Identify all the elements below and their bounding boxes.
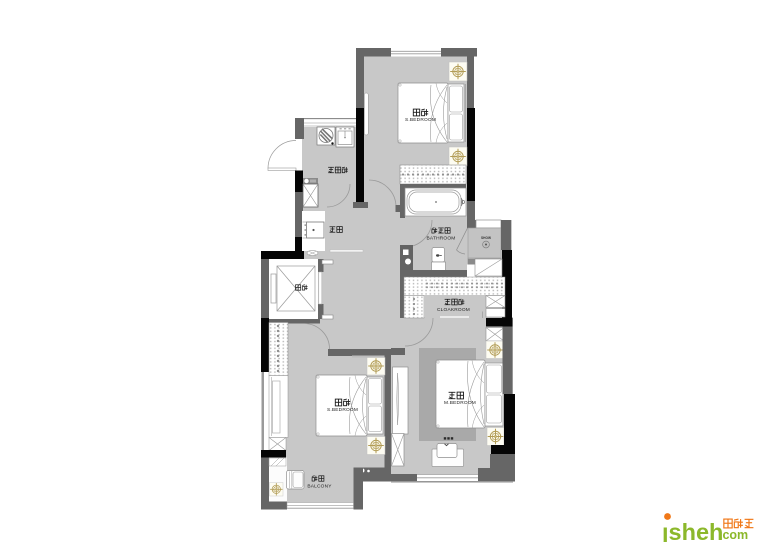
svg-text:BATHROOM: BATHROOM (427, 236, 456, 242)
svg-text:S.BEDROOM: S.BEDROOM (405, 117, 436, 123)
svg-text:S.BEDROOM: S.BEDROOM (327, 407, 358, 413)
svg-text:ȷsheh: ȷsheh (661, 519, 723, 542)
svg-text:.com: .com (719, 528, 748, 542)
svg-text:BALCONY: BALCONY (307, 484, 332, 490)
svg-text:CLOAKROOM: CLOAKROOM (437, 307, 470, 313)
svg-text:M.BEDROOM: M.BEDROOM (444, 400, 476, 406)
svg-text:SHOW: SHOW (481, 236, 491, 240)
